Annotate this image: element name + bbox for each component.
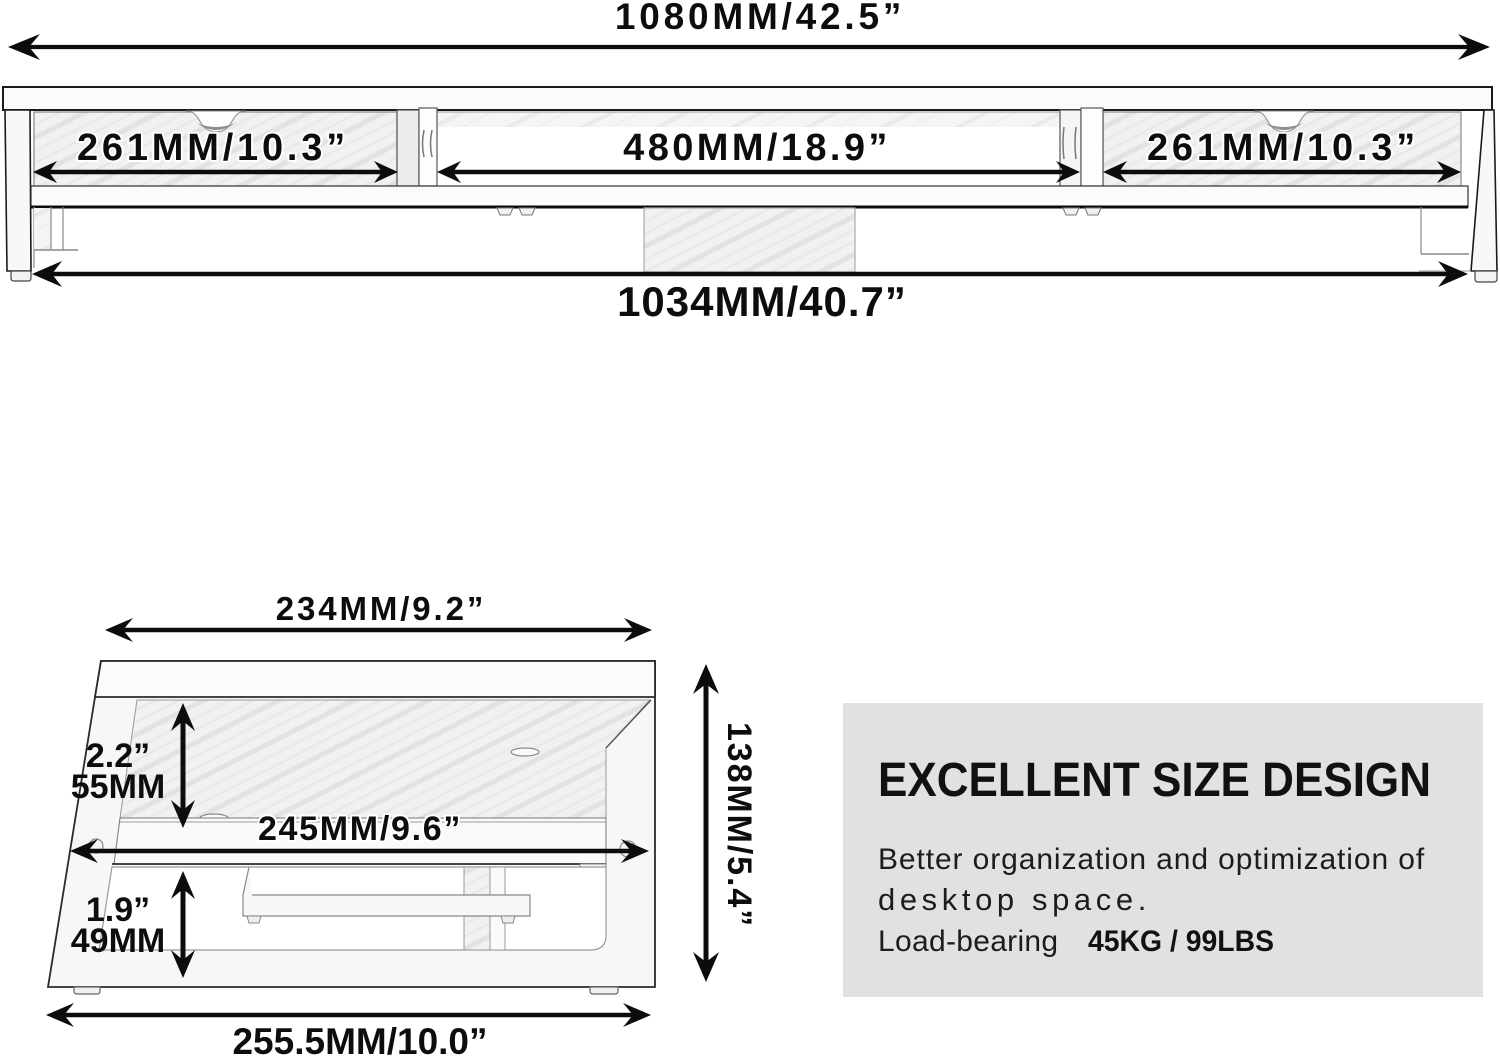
svg-text:138MM/5.4”: 138MM/5.4” bbox=[720, 722, 758, 928]
svg-text:Load-bearing: Load-bearing bbox=[878, 925, 1058, 958]
svg-text:234MM/9.2”: 234MM/9.2” bbox=[276, 590, 487, 627]
svg-text:245MM/9.6”: 245MM/9.6” bbox=[258, 810, 462, 848]
svg-text:desktop space.: desktop space. bbox=[878, 882, 1151, 917]
svg-text:45KG / 99LBS: 45KG / 99LBS bbox=[1088, 925, 1274, 958]
svg-text:55MM: 55MM bbox=[71, 768, 165, 806]
svg-text:49MM: 49MM bbox=[71, 922, 165, 960]
svg-text:1034MM/40.7”: 1034MM/40.7” bbox=[617, 278, 907, 325]
svg-text:Better organization and optimi: Better organization and optimization of bbox=[878, 843, 1425, 876]
svg-text:261MM/10.3”: 261MM/10.3” bbox=[77, 127, 349, 169]
svg-text:480MM/18.9”: 480MM/18.9” bbox=[623, 127, 891, 169]
svg-text:261MM/10.3”: 261MM/10.3” bbox=[1147, 127, 1419, 169]
svg-text:255.5MM/10.0”: 255.5MM/10.0” bbox=[232, 1021, 487, 1058]
svg-text:1080MM/42.5”: 1080MM/42.5” bbox=[615, 0, 905, 37]
svg-text:EXCELLENT SIZE DESIGN: EXCELLENT SIZE DESIGN bbox=[878, 754, 1431, 807]
